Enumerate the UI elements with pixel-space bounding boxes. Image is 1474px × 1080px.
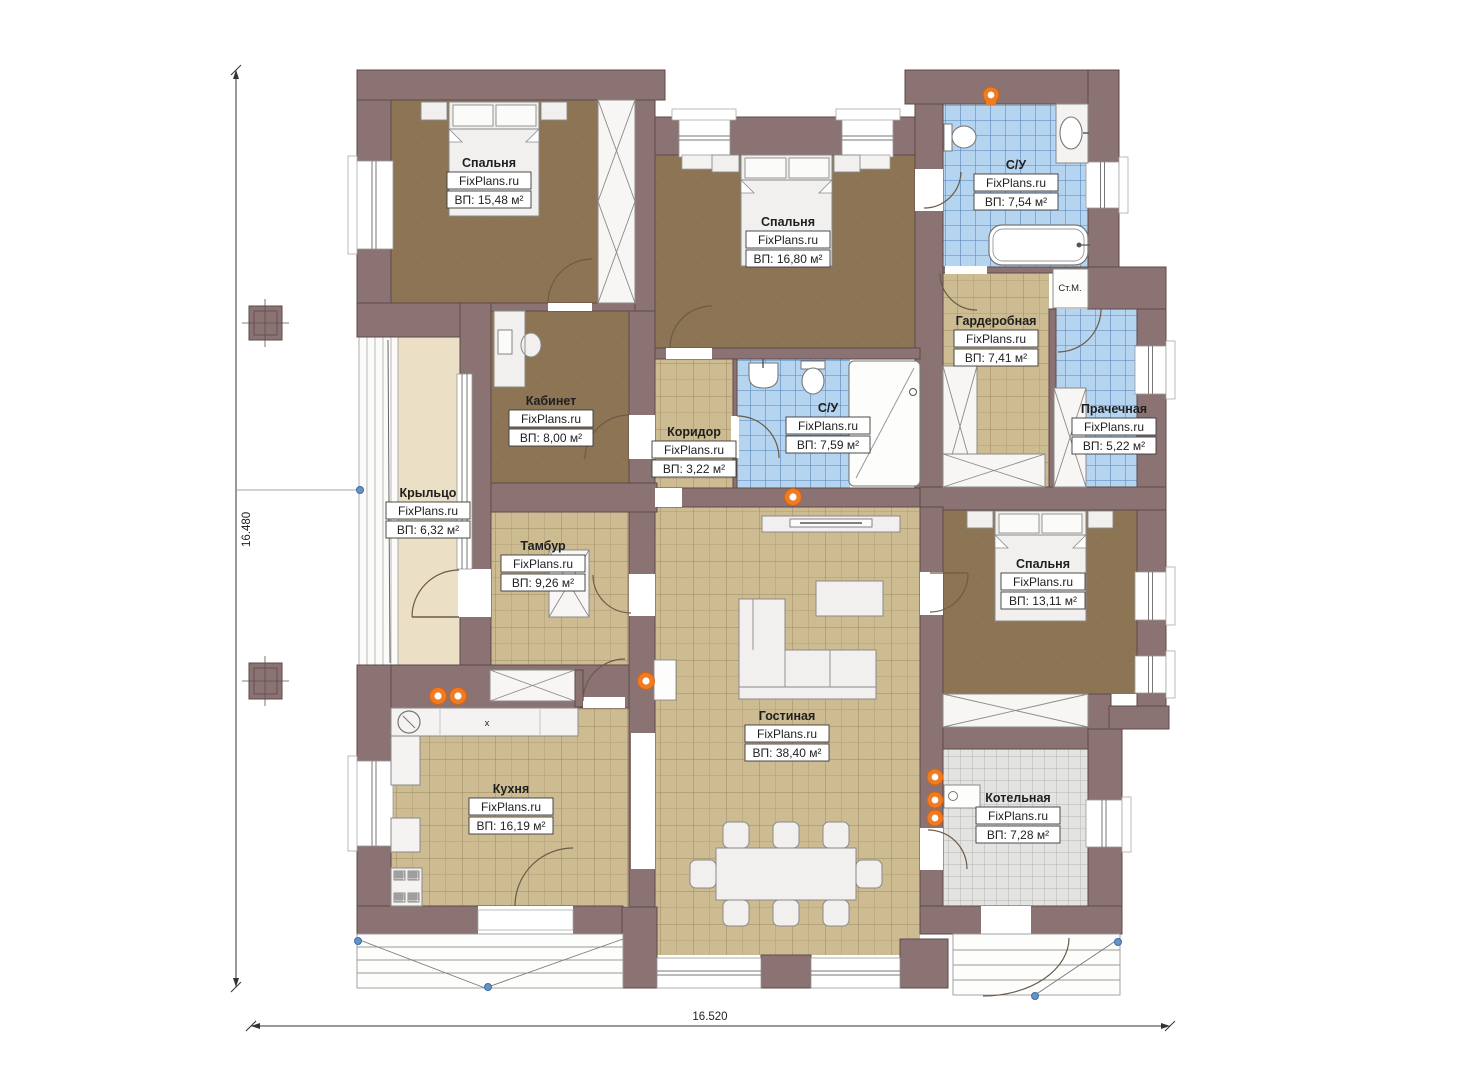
svg-text:16.480: 16.480 (241, 512, 253, 547)
svg-text:ВП: 7,59 м²: ВП: 7,59 м² (797, 438, 859, 452)
svg-text:Спальня: Спальня (462, 156, 516, 170)
svg-text:ВП: 9,26 м²: ВП: 9,26 м² (512, 576, 574, 590)
svg-text:Котельная: Котельная (985, 791, 1050, 805)
svg-text:Гардеробная: Гардеробная (956, 314, 1037, 328)
svg-text:FixPlans.ru: FixPlans.ru (664, 443, 724, 457)
svg-text:ВП: 6,32 м²: ВП: 6,32 м² (397, 523, 459, 537)
svg-text:FixPlans.ru: FixPlans.ru (513, 557, 573, 571)
svg-text:ВП: 5,22 м²: ВП: 5,22 м² (1083, 439, 1145, 453)
svg-text:Спальня: Спальня (761, 215, 815, 229)
svg-text:Гостиная: Гостиная (759, 709, 816, 723)
svg-text:ВП: 7,54 м²: ВП: 7,54 м² (985, 195, 1047, 209)
svg-text:FixPlans.ru: FixPlans.ru (988, 809, 1048, 823)
svg-text:FixPlans.ru: FixPlans.ru (758, 233, 818, 247)
svg-text:ВП: 3,22 м²: ВП: 3,22 м² (663, 462, 725, 476)
svg-text:FixPlans.ru: FixPlans.ru (398, 504, 458, 518)
svg-text:Ст.М.: Ст.М. (1058, 283, 1081, 294)
svg-text:FixPlans.ru: FixPlans.ru (798, 419, 858, 433)
svg-text:FixPlans.ru: FixPlans.ru (986, 176, 1046, 190)
svg-text:Кухня: Кухня (493, 782, 530, 796)
svg-text:ВП: 38,40 м²: ВП: 38,40 м² (753, 746, 822, 760)
svg-text:ВП: 7,28 м²: ВП: 7,28 м² (987, 828, 1049, 842)
svg-text:С/У: С/У (1006, 158, 1027, 172)
svg-text:FixPlans.ru: FixPlans.ru (1084, 420, 1144, 434)
svg-text:Крыльцо: Крыльцо (400, 486, 457, 500)
svg-text:С/У: С/У (818, 401, 839, 415)
svg-text:ВП: 13,11 м²: ВП: 13,11 м² (1009, 594, 1077, 608)
svg-text:Коридор: Коридор (667, 425, 721, 439)
svg-text:ВП: 8,00 м²: ВП: 8,00 м² (520, 431, 582, 445)
svg-text:ВП: 15,48 м²: ВП: 15,48 м² (455, 193, 524, 207)
svg-text:Спальня: Спальня (1016, 557, 1070, 571)
svg-text:x: x (485, 718, 490, 729)
svg-text:Прачечная: Прачечная (1081, 402, 1147, 416)
svg-text:Тамбур: Тамбур (520, 539, 566, 553)
svg-text:FixPlans.ru: FixPlans.ru (757, 727, 817, 741)
svg-text:FixPlans.ru: FixPlans.ru (966, 332, 1026, 346)
svg-text:FixPlans.ru: FixPlans.ru (459, 174, 519, 188)
svg-text:Кабинет: Кабинет (526, 394, 577, 408)
svg-text:ВП: 16,80 м²: ВП: 16,80 м² (754, 252, 823, 266)
svg-text:FixPlans.ru: FixPlans.ru (521, 412, 581, 426)
svg-text:ВП: 16,19 м²: ВП: 16,19 м² (477, 819, 546, 833)
svg-text:FixPlans.ru: FixPlans.ru (481, 800, 541, 814)
svg-text:ВП: 7,41 м²: ВП: 7,41 м² (965, 351, 1027, 365)
svg-text:16.520: 16.520 (692, 1011, 727, 1023)
svg-text:FixPlans.ru: FixPlans.ru (1013, 575, 1073, 589)
